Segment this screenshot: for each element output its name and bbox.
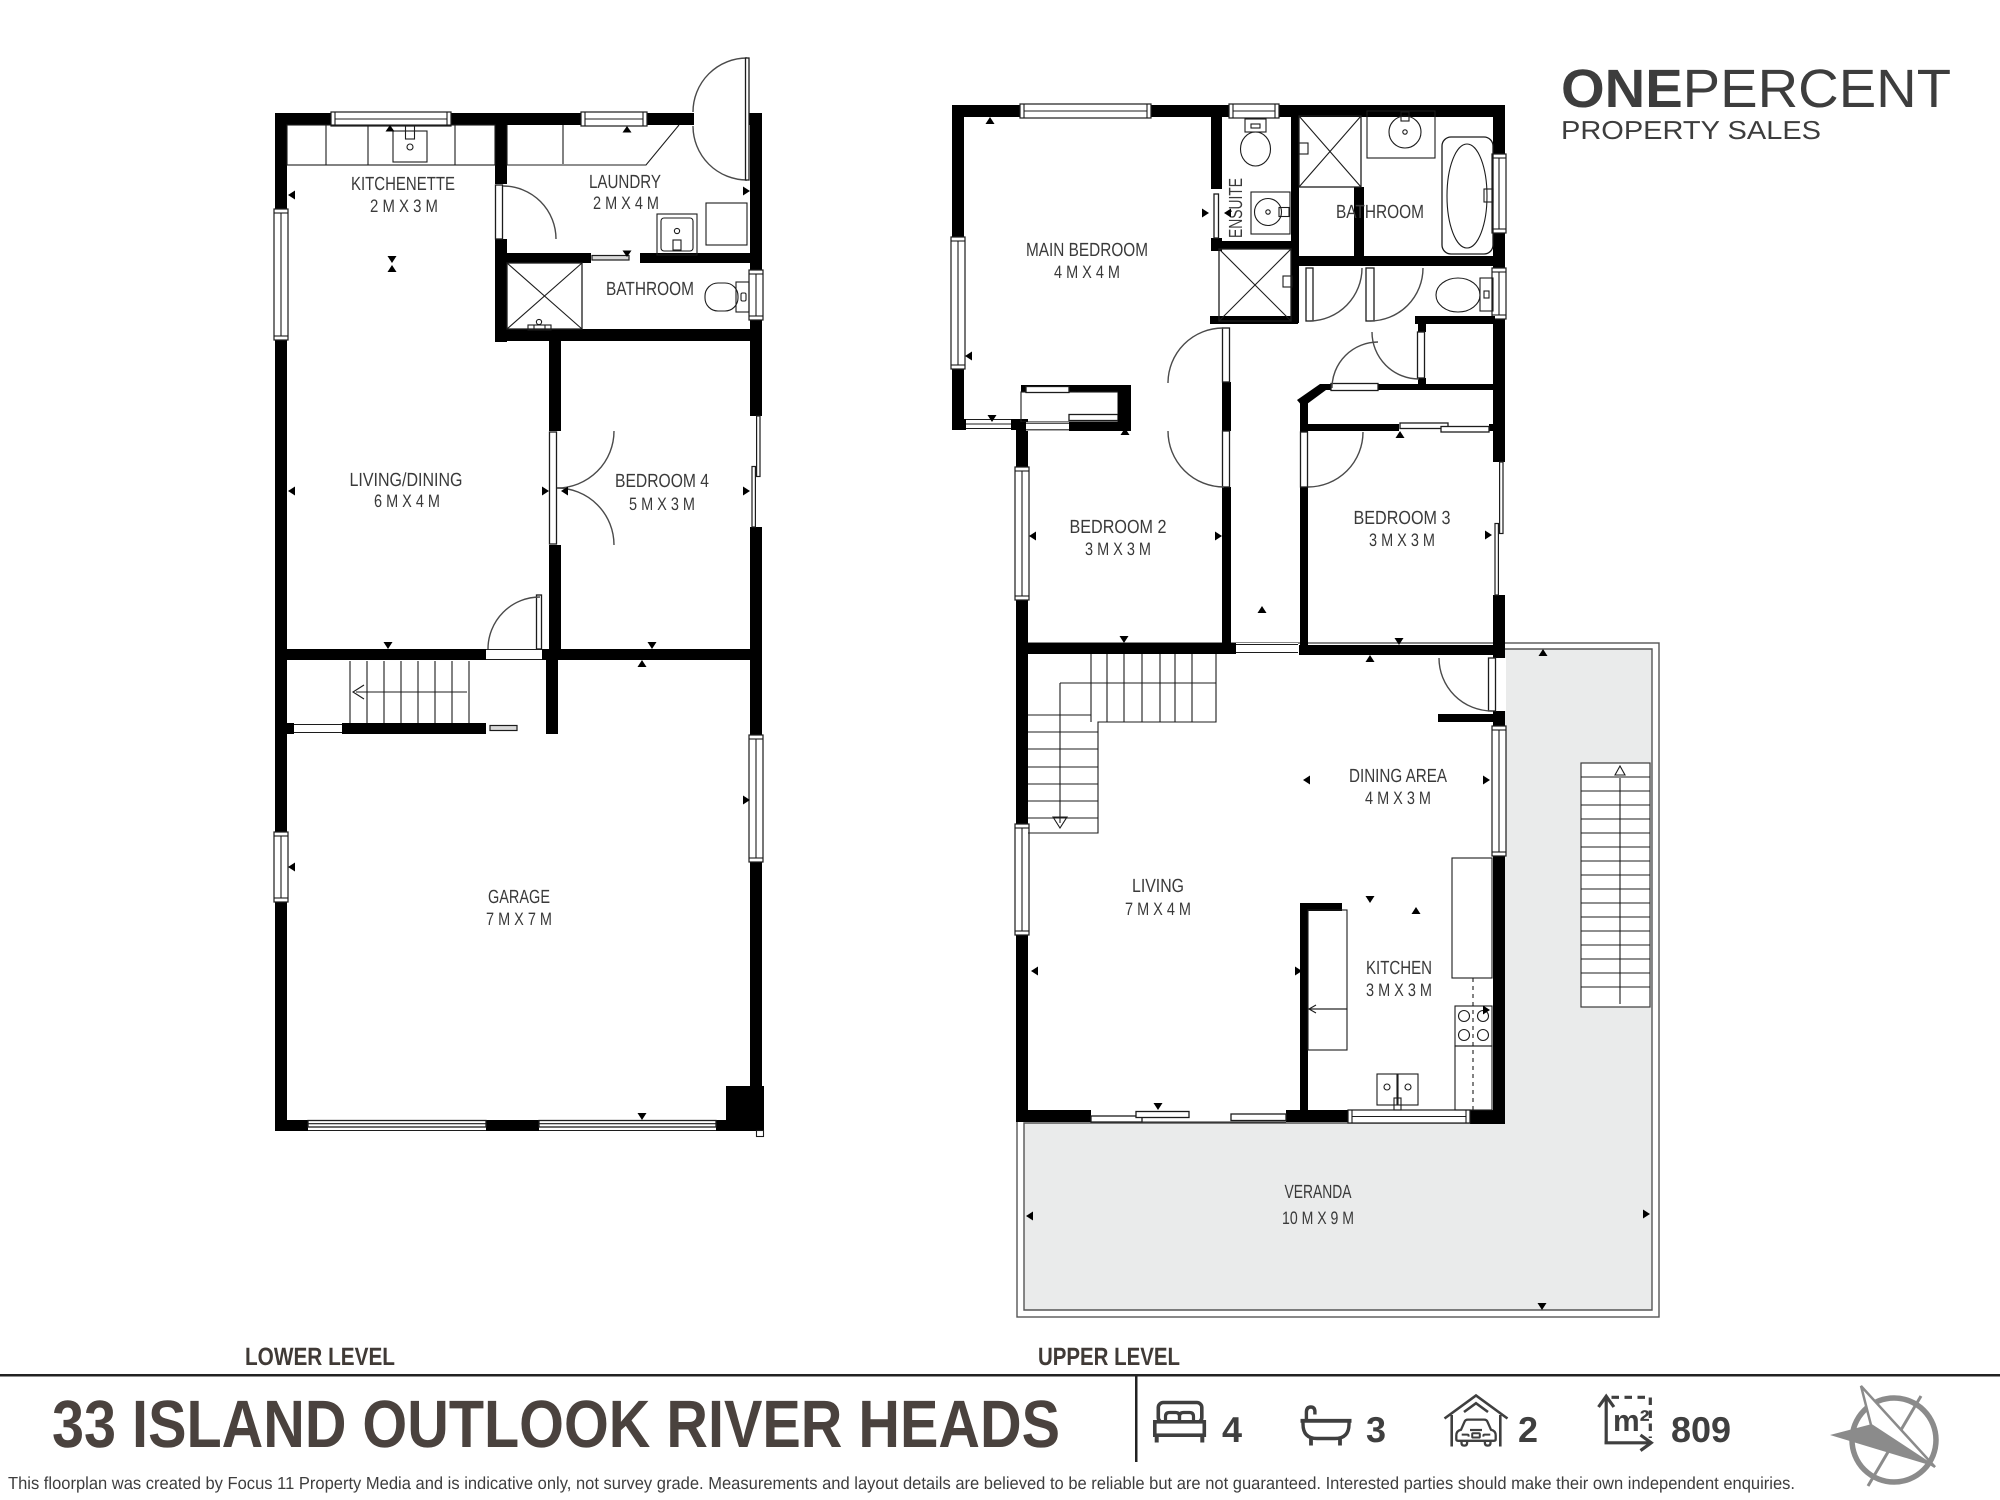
svg-text:809: 809 [1671,1409,1731,1450]
svg-text:PROPERTY SALES: PROPERTY SALES [1561,115,1821,145]
svg-text:BATHROOM: BATHROOM [1336,202,1424,223]
svg-text:3 M X 3 M: 3 M X 3 M [1369,530,1435,550]
svg-text:ENSUITE: ENSUITE [1226,178,1247,238]
svg-text:2 M X 3 M: 2 M X 3 M [370,196,438,216]
svg-text:BATHROOM: BATHROOM [606,279,694,300]
svg-text:UPPER LEVEL: UPPER LEVEL [1038,1343,1180,1371]
svg-text:3 M X 3 M: 3 M X 3 M [1085,539,1151,559]
svg-text:LOWER LEVEL: LOWER LEVEL [245,1343,395,1371]
svg-text:LAUNDRY: LAUNDRY [589,172,661,193]
svg-text:KITCHENETTE: KITCHENETTE [351,174,455,195]
svg-text:33 ISLAND OUTLOOK RIVER HEADS: 33 ISLAND OUTLOOK RIVER HEADS [52,1387,1060,1462]
svg-text:BEDROOM 3: BEDROOM 3 [1354,508,1451,529]
svg-text:GARAGE: GARAGE [488,887,550,908]
svg-text:4 M X 3 M: 4 M X 3 M [1365,788,1431,808]
svg-text:3: 3 [1366,1409,1386,1450]
svg-text:10 M X 9 M: 10 M X 9 M [1282,1208,1354,1228]
svg-text:LIVING/DINING: LIVING/DINING [350,470,463,491]
svg-text:LIVING: LIVING [1132,876,1184,897]
svg-text:7 M X 7 M: 7 M X 7 M [486,909,552,929]
svg-text:DINING AREA: DINING AREA [1349,766,1447,787]
svg-text:BEDROOM 4: BEDROOM 4 [615,471,709,492]
svg-text:2: 2 [1518,1409,1538,1450]
svg-text:m²: m² [1613,1405,1650,1438]
svg-text:4: 4 [1222,1409,1242,1450]
svg-text:2 M X 4 M: 2 M X 4 M [593,193,659,213]
svg-text:MAIN BEDROOM: MAIN BEDROOM [1026,240,1148,261]
svg-text:3 M X 3 M: 3 M X 3 M [1366,980,1432,1000]
svg-text:7 M X 4 M: 7 M X 4 M [1125,899,1191,919]
svg-text:VERANDA: VERANDA [1285,1182,1352,1203]
svg-text:5 M X 3 M: 5 M X 3 M [629,494,695,514]
svg-text:4 M X 4 M: 4 M X 4 M [1054,262,1120,282]
svg-text:This floorplan was created by: This floorplan was created by Focus 11 P… [8,1473,1795,1493]
svg-text:ONEPERCENT: ONEPERCENT [1561,59,1951,119]
svg-text:KITCHEN: KITCHEN [1366,958,1432,979]
svg-text:BEDROOM 2: BEDROOM 2 [1070,517,1167,538]
svg-text:6 M X 4 M: 6 M X 4 M [374,491,440,511]
